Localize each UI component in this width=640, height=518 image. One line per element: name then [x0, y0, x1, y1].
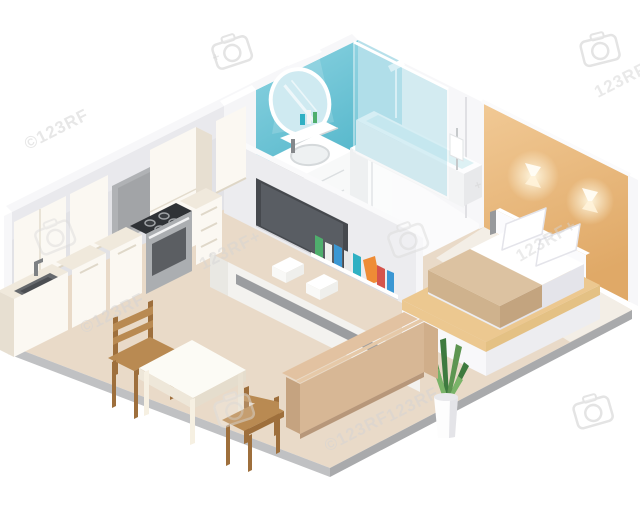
- watermark-text: 123RF: [591, 59, 640, 101]
- isometric-apartment-illustration: ©123RF ©123RF 123RF+ ©123RF 123RF 123RF+…: [0, 0, 640, 518]
- camera-watermark-icon: [578, 29, 620, 67]
- burner: [159, 213, 169, 219]
- wall-sconce: [507, 150, 559, 202]
- kitchen-faucet: [34, 262, 38, 276]
- sofa-arm-left: [286, 377, 300, 434]
- bedroom-wall-right-trim: [628, 175, 638, 306]
- watermark-text: ©123RF: [21, 105, 92, 154]
- upper-cabinet: [216, 106, 246, 193]
- wall-sconce: [566, 177, 614, 225]
- watermark-plus: +: [210, 49, 222, 65]
- camera-watermark-icon: [571, 391, 614, 430]
- burner: [145, 220, 155, 226]
- sofa-arm-right: [424, 322, 438, 379]
- camera-watermark-icon: [210, 30, 254, 70]
- sink-faucet: [291, 139, 295, 153]
- apartment-scene: ©123RF ©123RF 123RF+ ©123RF 123RF 123RF+…: [0, 0, 640, 518]
- book: [387, 270, 394, 293]
